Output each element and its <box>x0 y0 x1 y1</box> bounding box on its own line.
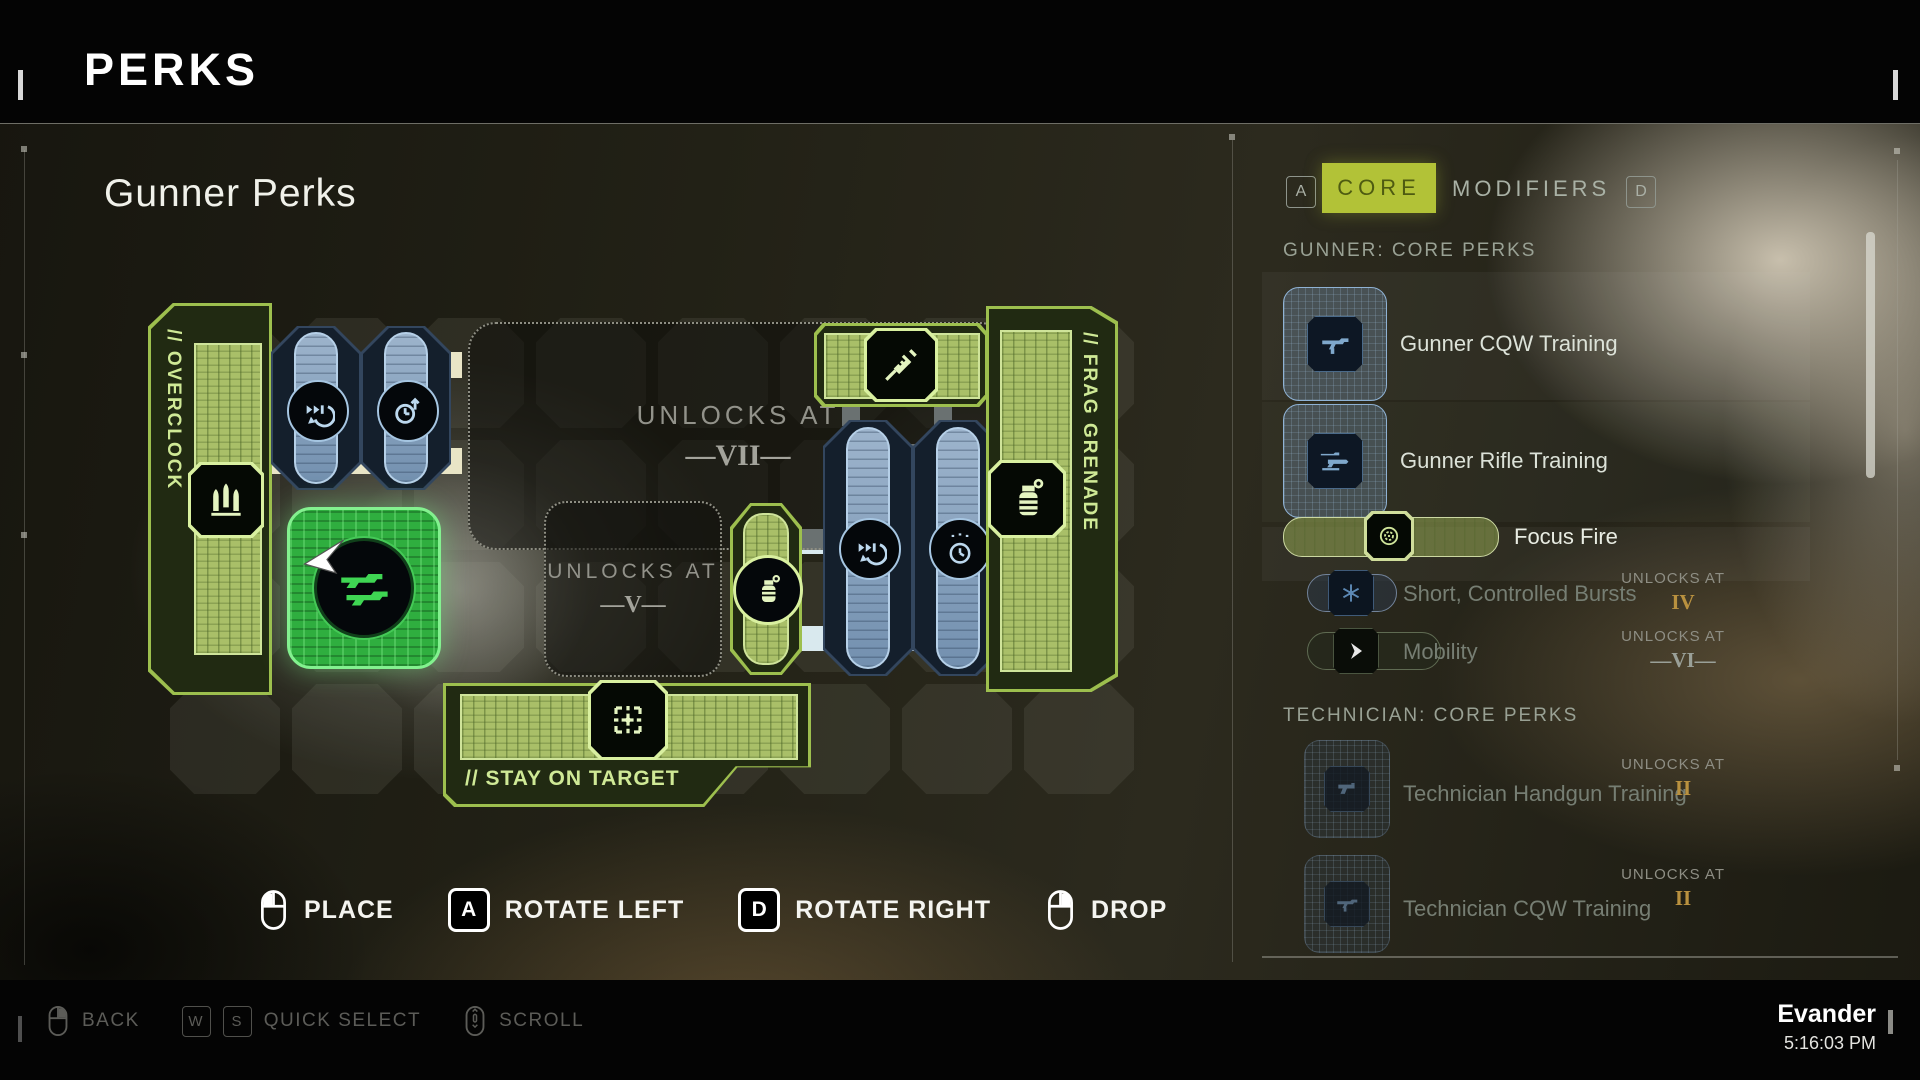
panel-right-line <box>1897 160 1898 760</box>
hint-label: SCROLL <box>499 1010 584 1032</box>
top-right-tick <box>1893 70 1898 100</box>
focus-target-icon <box>1364 511 1414 561</box>
perk-name[interactable]: Gunner CQW Training <box>1400 331 1618 357</box>
perk-name[interactable]: Short, Controlled Bursts <box>1403 581 1637 607</box>
stopwatch-icon <box>929 518 991 580</box>
mouse-cursor <box>300 534 348 582</box>
handgun-icon <box>1324 766 1370 812</box>
locked-zone-level: —VII— <box>685 439 790 473</box>
perk-name[interactable]: Mobility <box>1403 639 1478 665</box>
tab-next-key[interactable]: D <box>1626 176 1656 208</box>
perk-tile-tech-handgun[interactable] <box>1304 740 1390 838</box>
guide-dot <box>21 146 27 152</box>
page-title: PERKS <box>84 44 259 96</box>
key-d: D <box>738 888 780 932</box>
hint-label: BACK <box>82 1010 140 1032</box>
piece-stay-label: // STAY ON TARGET <box>465 767 680 791</box>
clock-up-icon <box>377 380 439 442</box>
footer-right-tick <box>1888 1010 1893 1034</box>
clock-time: 5:16:03 PM <box>1777 1033 1876 1054</box>
mouse-right-icon <box>46 1005 70 1037</box>
unlocks-level: II <box>1623 886 1743 911</box>
panel-divider-line <box>1232 140 1233 962</box>
section-title-gunner: GUNNER: CORE PERKS <box>1283 240 1536 262</box>
tab-prev-key[interactable]: A <box>1286 176 1316 208</box>
hint-quick-select[interactable]: W S QUICK SELECT <box>182 1006 421 1037</box>
guide-dot <box>1894 765 1900 771</box>
grid-cell[interactable] <box>1024 684 1134 794</box>
crosshair-icon <box>588 680 668 760</box>
mobility-arrow-icon <box>1333 628 1379 674</box>
perks-screen: PERKS Gunner Perks // OVERCLOCK <box>0 0 1920 1080</box>
unlocks-level: IV <box>1623 590 1743 615</box>
perk-name[interactable]: Technician CQW Training <box>1403 896 1651 922</box>
rifle-icon <box>1307 433 1363 489</box>
cqw-gun-icon <box>1307 316 1363 372</box>
control-label: DROP <box>1091 896 1167 925</box>
frag-grenade-icon <box>988 460 1066 538</box>
section-title-technician: TECHNICIAN: CORE PERKS <box>1283 705 1578 727</box>
control-drop[interactable]: DROP <box>1045 889 1167 931</box>
player-name: Evander <box>1777 1000 1876 1029</box>
reload-speed-icon <box>287 380 349 442</box>
guide-dot <box>21 352 27 358</box>
controls-bar: PLACE A ROTATE LEFT D ROTATE RIGHT DROP <box>258 888 1167 932</box>
panel-bottom-line <box>1262 956 1898 958</box>
syringe-icon <box>864 328 938 402</box>
key-s: S <box>223 1006 252 1037</box>
footer-left-tick <box>18 1016 22 1042</box>
control-label: ROTATE RIGHT <box>795 896 991 925</box>
locked-zone-v: UNLOCKS AT —V— <box>544 501 722 677</box>
control-rotate-right[interactable]: D ROTATE RIGHT <box>738 888 991 932</box>
ammo-bullets-icon <box>188 462 264 538</box>
perk-tile-tech-cqw[interactable] <box>1304 855 1390 953</box>
burst-icon <box>1328 570 1374 616</box>
hint-label: QUICK SELECT <box>264 1010 421 1032</box>
piece-overclock-label: // OVERCLOCK <box>162 329 184 490</box>
guide-dot <box>21 532 27 538</box>
grid-cell[interactable] <box>170 684 280 794</box>
tab-modifiers[interactable]: MODIFIERS <box>1452 176 1610 202</box>
unlocks-label: UNLOCKS AT <box>1605 756 1725 773</box>
player-info: Evander 5:16:03 PM <box>1777 1000 1876 1054</box>
reload-speed-icon <box>839 518 901 580</box>
grid-cell[interactable] <box>292 684 402 794</box>
mouse-left-icon <box>258 889 289 931</box>
mouse-scroll-icon <box>463 1005 487 1037</box>
key-w: W <box>182 1006 211 1037</box>
locked-zone-label: UNLOCKS AT <box>637 400 840 431</box>
unlocks-label: UNLOCKS AT <box>1605 628 1725 645</box>
hint-back[interactable]: BACK <box>46 1005 140 1037</box>
control-label: PLACE <box>304 896 394 925</box>
key-a: A <box>448 888 490 932</box>
locked-zone-label: UNLOCKS AT <box>547 560 718 584</box>
locked-zone-level: —V— <box>600 592 665 619</box>
unlocks-label: UNLOCKS AT <box>1605 570 1725 587</box>
piece-frag-label: // FRAG GRENADE <box>1078 332 1100 532</box>
mouse-right-icon <box>1045 889 1076 931</box>
cqw-gun-icon <box>1324 881 1370 927</box>
board-title: Gunner Perks <box>104 172 357 216</box>
hint-scroll[interactable]: SCROLL <box>463 1005 584 1037</box>
top-bar: PERKS <box>0 0 1920 124</box>
unlocks-label: UNLOCKS AT <box>1605 866 1725 883</box>
perk-tile-gunner-rifle[interactable] <box>1283 404 1387 518</box>
grenade-icon <box>733 555 803 625</box>
footer-hints: BACK W S QUICK SELECT SCROLL <box>46 1005 584 1037</box>
tab-core[interactable]: CORE <box>1322 163 1436 213</box>
unlocks-level: —VI— <box>1623 648 1743 673</box>
grid-cell[interactable] <box>902 684 1012 794</box>
control-rotate-left[interactable]: A ROTATE LEFT <box>448 888 685 932</box>
control-label: ROTATE LEFT <box>505 896 685 925</box>
top-left-tick <box>18 70 23 100</box>
guide-dot <box>1229 134 1235 140</box>
unlocks-level: II <box>1623 776 1743 801</box>
left-guide-line <box>24 150 25 965</box>
scrollbar-thumb[interactable] <box>1866 232 1875 478</box>
perk-name[interactable]: Gunner Rifle Training <box>1400 448 1608 474</box>
perk-name[interactable]: Focus Fire <box>1514 524 1618 550</box>
perk-tile-gunner-cqw[interactable] <box>1283 287 1387 401</box>
guide-dot <box>1894 148 1900 154</box>
control-place[interactable]: PLACE <box>258 889 394 931</box>
